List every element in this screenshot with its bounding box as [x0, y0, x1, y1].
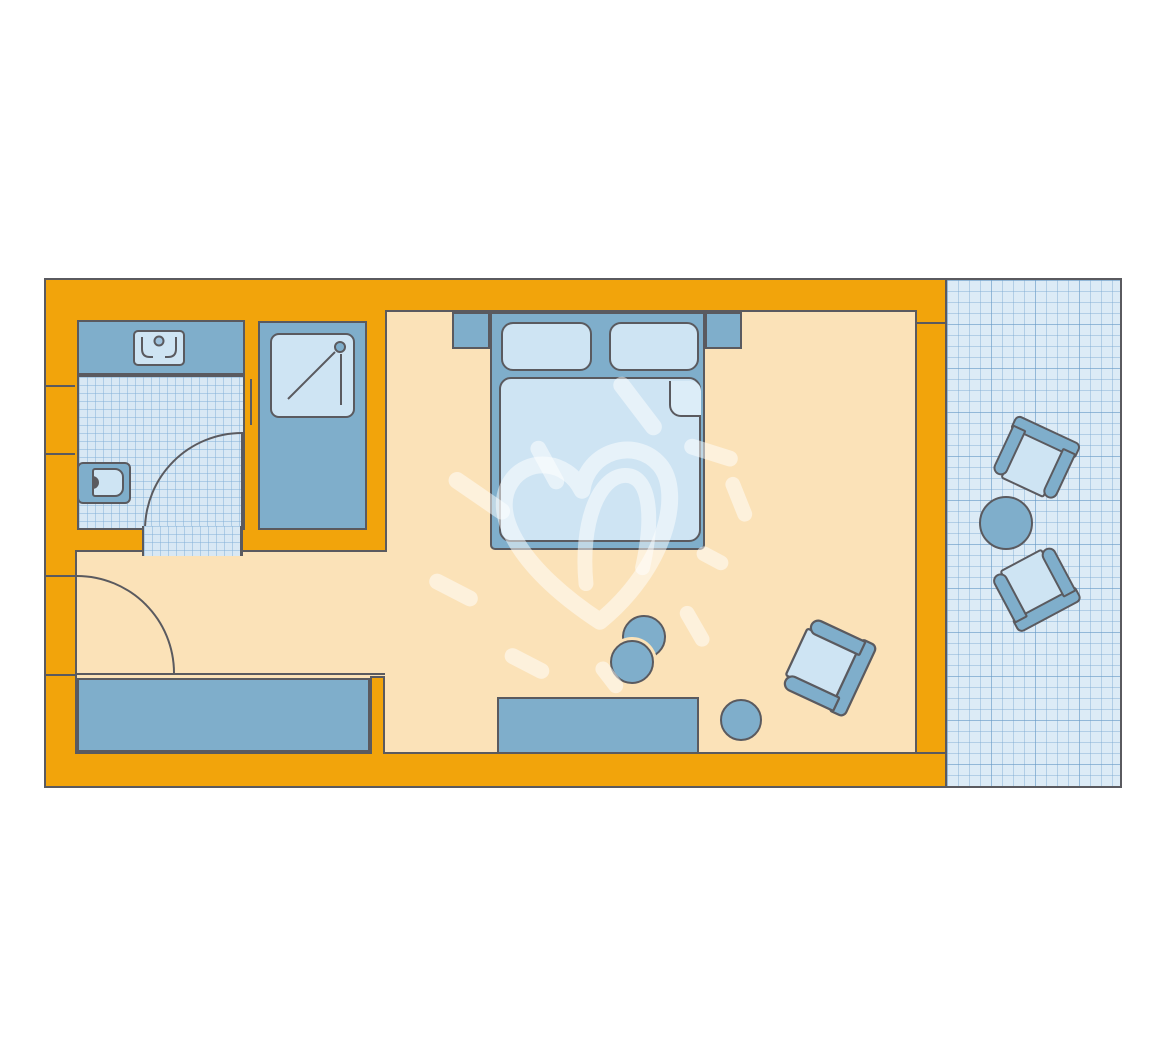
pillow-left [501, 322, 592, 371]
washbasin-vanity [77, 320, 245, 375]
bed-frame [490, 312, 705, 550]
toilet [77, 462, 131, 504]
shower-partition-line [250, 379, 252, 425]
floor-plan [44, 278, 1122, 788]
entrance-door-leaf [75, 673, 385, 675]
balcony-chair-top [988, 414, 1082, 506]
pillow-right [609, 322, 699, 371]
duvet-folded-corner [669, 381, 701, 417]
washbasin-icon [133, 330, 185, 366]
balcony-chair-bottom [987, 540, 1082, 634]
nightstand-right [705, 312, 742, 349]
duvet [499, 377, 701, 542]
balcony-round-table [979, 496, 1033, 550]
stool [720, 699, 762, 741]
bathroom-door-leaf [241, 432, 243, 556]
page-background [0, 0, 1161, 1057]
bathroom-door-opening [142, 526, 242, 556]
shower-cabin [258, 321, 367, 530]
shower-tray-icon [270, 333, 355, 418]
wall-joint-line [46, 575, 75, 577]
nightstand-left [452, 312, 490, 349]
wardrobe [77, 678, 370, 752]
balcony-floor [945, 280, 1120, 786]
sideboard [497, 697, 699, 754]
wall-stub [370, 676, 385, 754]
window-wall-line [917, 752, 947, 754]
stool-pair-front [610, 640, 654, 684]
bathroom-block [75, 310, 387, 552]
wall-joint-line [46, 385, 75, 387]
wall-joint-line [46, 453, 75, 455]
window-wall-line [917, 322, 947, 324]
wall-joint-line [46, 674, 75, 676]
